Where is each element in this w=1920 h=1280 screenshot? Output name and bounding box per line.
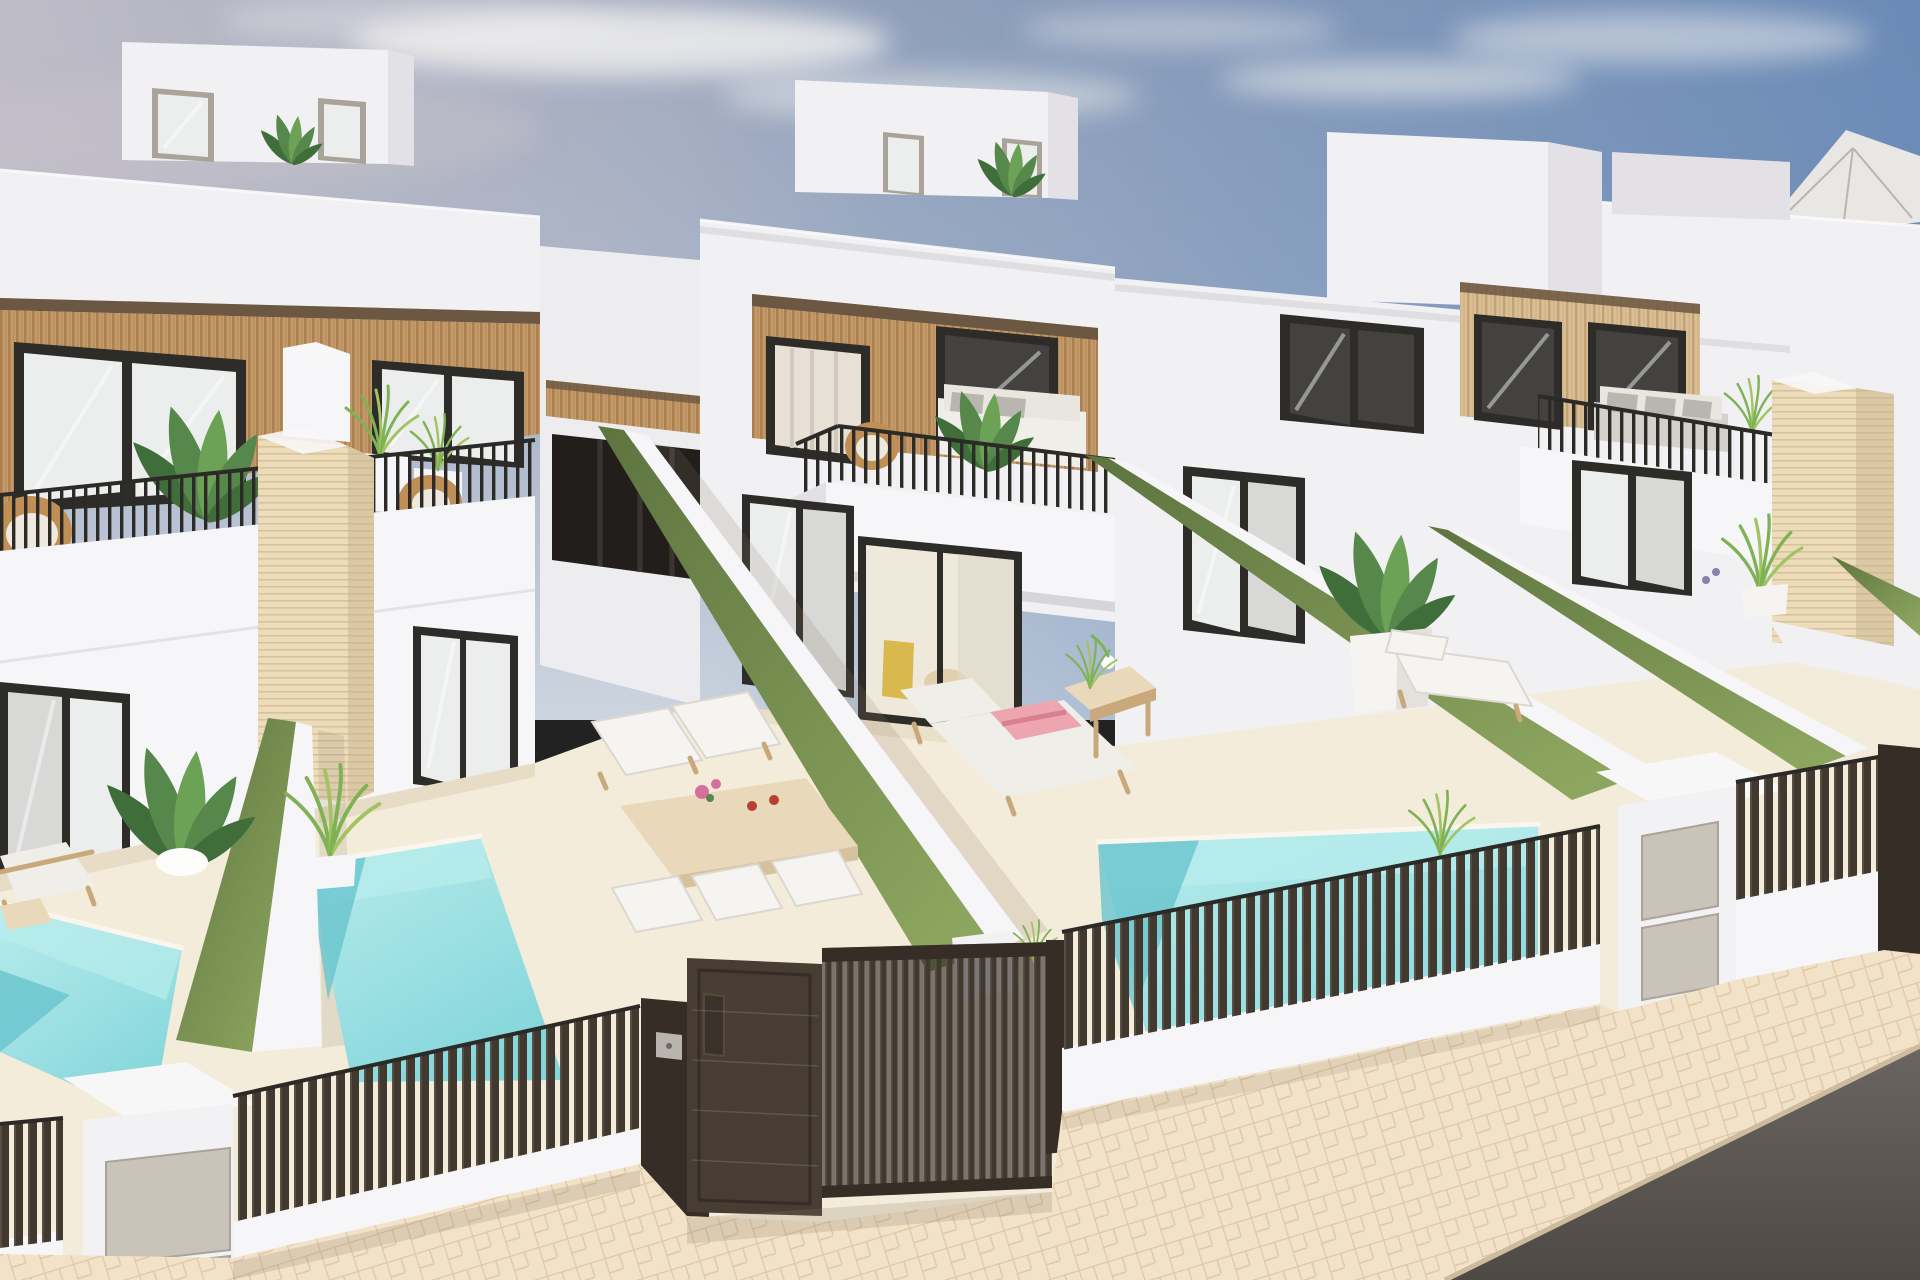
plant-pot	[156, 848, 208, 876]
mail-slot	[704, 994, 724, 1056]
meter-door	[106, 1148, 230, 1264]
meter-door	[1642, 822, 1718, 920]
house3-roof-box-side	[1548, 142, 1602, 310]
house1-roof-box	[122, 42, 414, 168]
house3-roof-box-rear	[1612, 152, 1790, 220]
house3-ground-door-2	[1572, 460, 1692, 596]
travertine-pillar-3	[1772, 372, 1894, 654]
sliding-vehicle-gate	[822, 920, 1057, 1198]
house1-terrace-pier	[283, 348, 350, 442]
meter-door	[1642, 914, 1718, 1000]
plant-pot-cube	[306, 854, 356, 890]
pedestrian-gate-door	[687, 958, 822, 1216]
architectural-render	[0, 0, 1920, 1280]
house3-roof-box	[1327, 132, 1548, 308]
render-canvas	[0, 0, 1920, 1280]
utility-post-1	[63, 1062, 256, 1280]
slat-fence-segment-1	[0, 1118, 63, 1248]
house3-window-left	[1280, 314, 1424, 434]
house2-roof-box	[795, 80, 1078, 201]
